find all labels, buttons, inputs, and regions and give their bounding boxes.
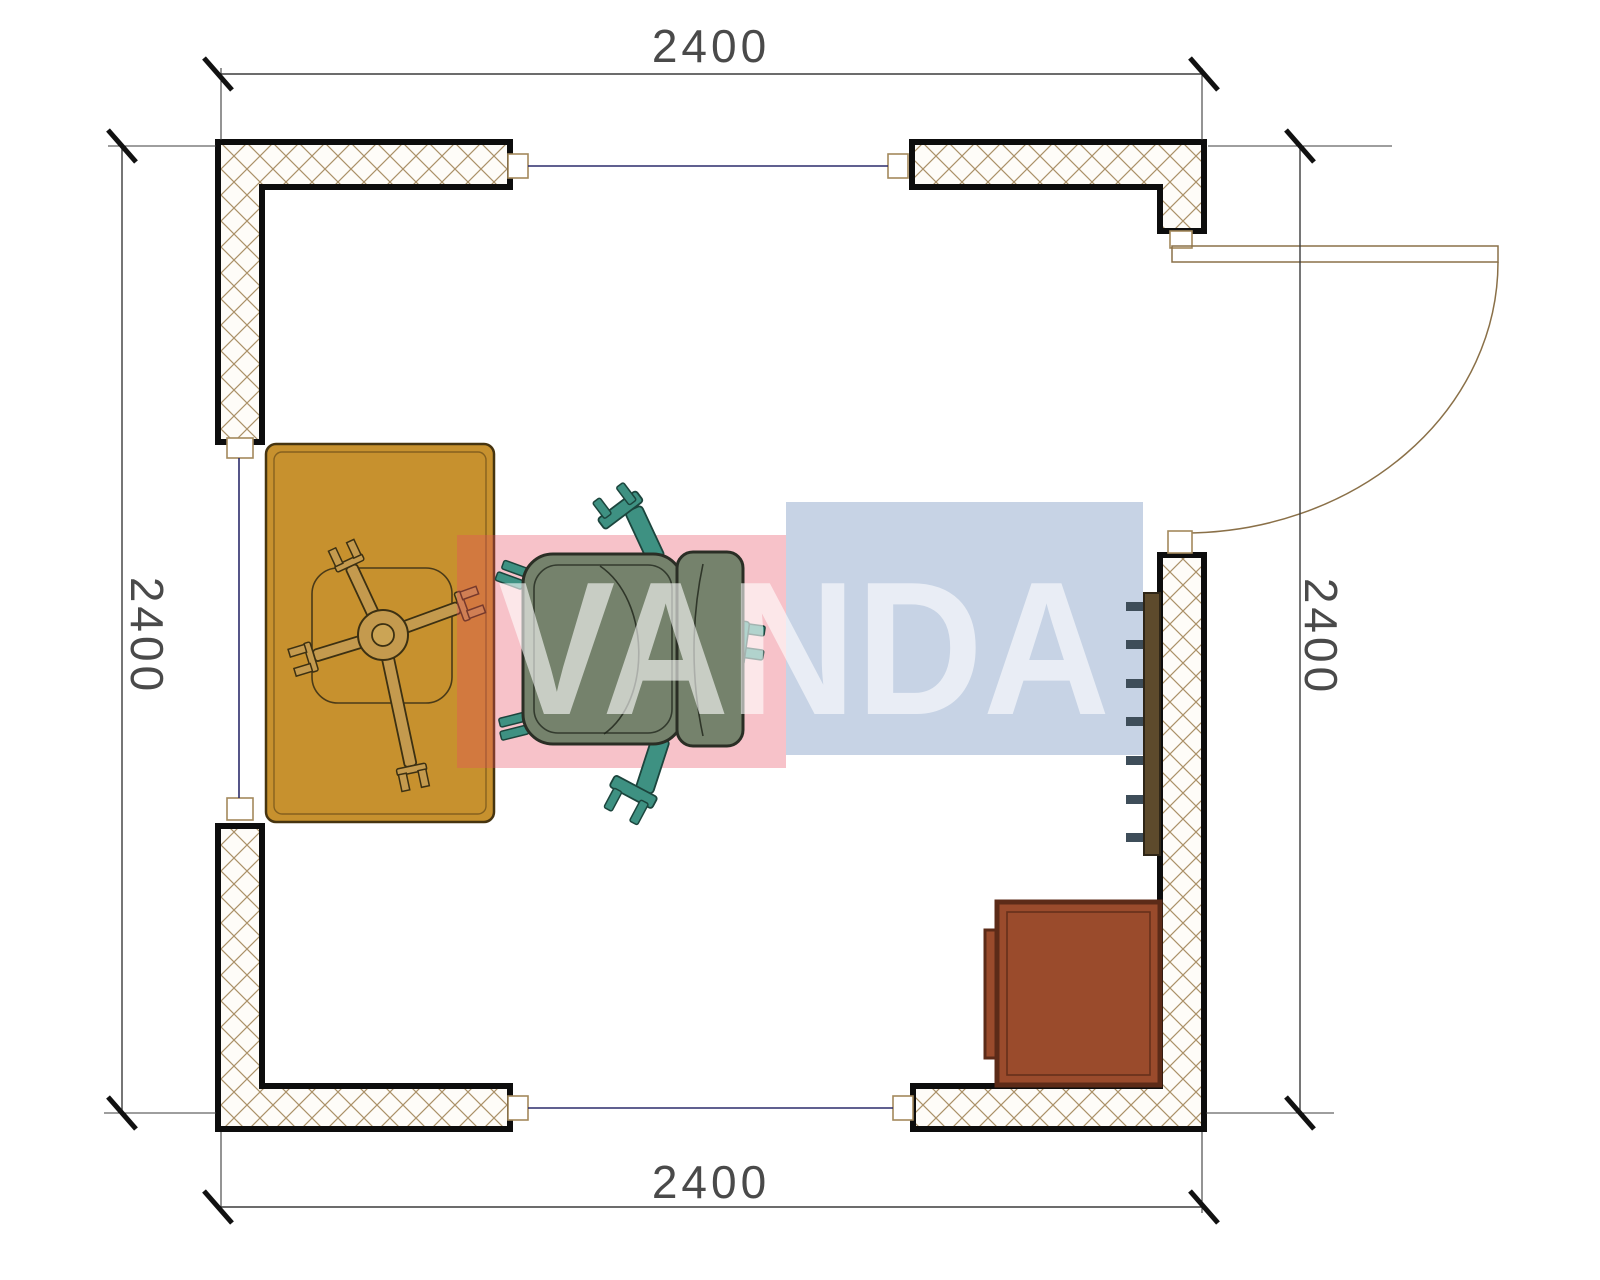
wall-top-right bbox=[912, 142, 1204, 231]
floor-plan-page: VANDA bbox=[0, 0, 1600, 1280]
door-strike-box bbox=[1168, 531, 1192, 553]
cabinet-body bbox=[997, 902, 1160, 1085]
door-swing-arc bbox=[1184, 262, 1498, 533]
window-frame-box bbox=[227, 798, 253, 820]
dimension-label-bottom: 2400 bbox=[652, 1156, 770, 1208]
wall-top-left bbox=[218, 142, 510, 442]
door-group bbox=[1168, 231, 1498, 553]
watermark-text: VANDA bbox=[498, 543, 1110, 755]
dimension-left: 2400 bbox=[104, 130, 216, 1129]
window-frame-box bbox=[888, 154, 908, 178]
dimension-top: 2400 bbox=[204, 20, 1218, 140]
floor-plan-canvas: VANDA bbox=[0, 0, 1600, 1280]
door-leaf bbox=[1172, 246, 1498, 262]
dimension-label-top: 2400 bbox=[652, 20, 770, 72]
window-frame-box bbox=[508, 154, 528, 178]
window-frame-box bbox=[227, 438, 253, 458]
radiator-bar bbox=[1144, 593, 1160, 855]
base-hub-inner bbox=[372, 624, 394, 646]
window-frame-box bbox=[508, 1096, 528, 1120]
dimension-right: 2400 bbox=[1206, 130, 1392, 1129]
dimension-label-right: 2400 bbox=[1295, 578, 1347, 696]
dimension-label-left: 2400 bbox=[121, 577, 173, 695]
wall-bottom-left bbox=[218, 826, 510, 1129]
cabinet-group bbox=[985, 902, 1160, 1085]
dimension-bottom: 2400 bbox=[204, 1132, 1218, 1223]
window-frame-box bbox=[893, 1096, 913, 1120]
